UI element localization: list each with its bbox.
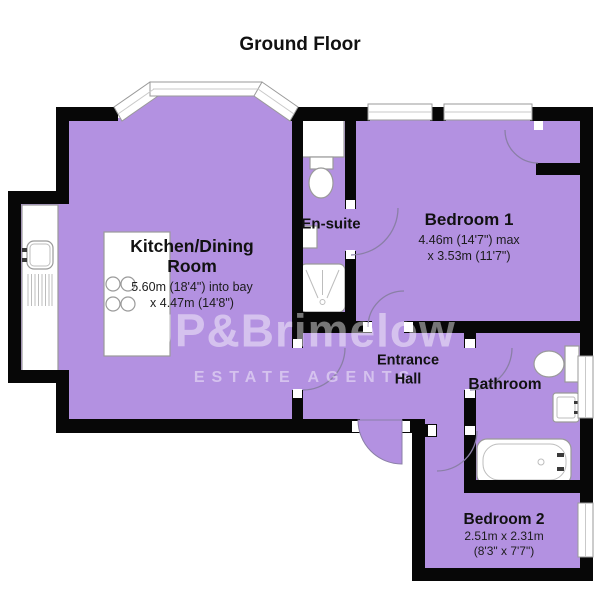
hall-label-line1: Entrance (377, 353, 439, 370)
kitchen-dimensions-line1: 5.60m (18'4") into bay (131, 280, 252, 294)
bathroom-label: Bathroom (468, 376, 541, 394)
bedroom1-dimensions-line1: 4.46m (14'7") max (418, 233, 519, 247)
page-title: Ground Floor (239, 34, 360, 56)
bedroom2-dimensions-line2: (8'3" x 7'7") (474, 545, 534, 559)
kitchen-counter (22, 205, 58, 371)
kitchen-label-line1: Kitchen/Dining (130, 236, 253, 256)
bedroom1-label: Bedroom 1 (425, 210, 514, 230)
bedroom1-dimensions-line2: x 3.53m (11'7") (427, 249, 510, 263)
ensuite-label: En-suite (301, 215, 360, 232)
bathtub (477, 439, 571, 485)
front-door-swing (358, 420, 402, 464)
kitchen-tap (22, 258, 27, 262)
bathroom-basin (553, 393, 579, 422)
watermark-tagline: ESTATE AGENTS (194, 369, 416, 387)
bedroom2-label: Bedroom 2 (464, 511, 545, 529)
hall-label-line2: Hall (395, 372, 422, 389)
kitchen-dimensions-line2: x 4.47m (14'8") (150, 296, 234, 310)
bedroom2-dimensions-line1: 2.51m x 2.31m (464, 530, 543, 544)
watermark-brand: JP&Brimelow (148, 305, 456, 358)
floor-plan-drawing (0, 0, 600, 600)
floor-plan-page: JP&Brimelow ESTATE AGENTS Ground Floor K… (0, 0, 600, 600)
kitchen-tap (22, 248, 27, 252)
kitchen-label-line2: Room (167, 256, 217, 276)
